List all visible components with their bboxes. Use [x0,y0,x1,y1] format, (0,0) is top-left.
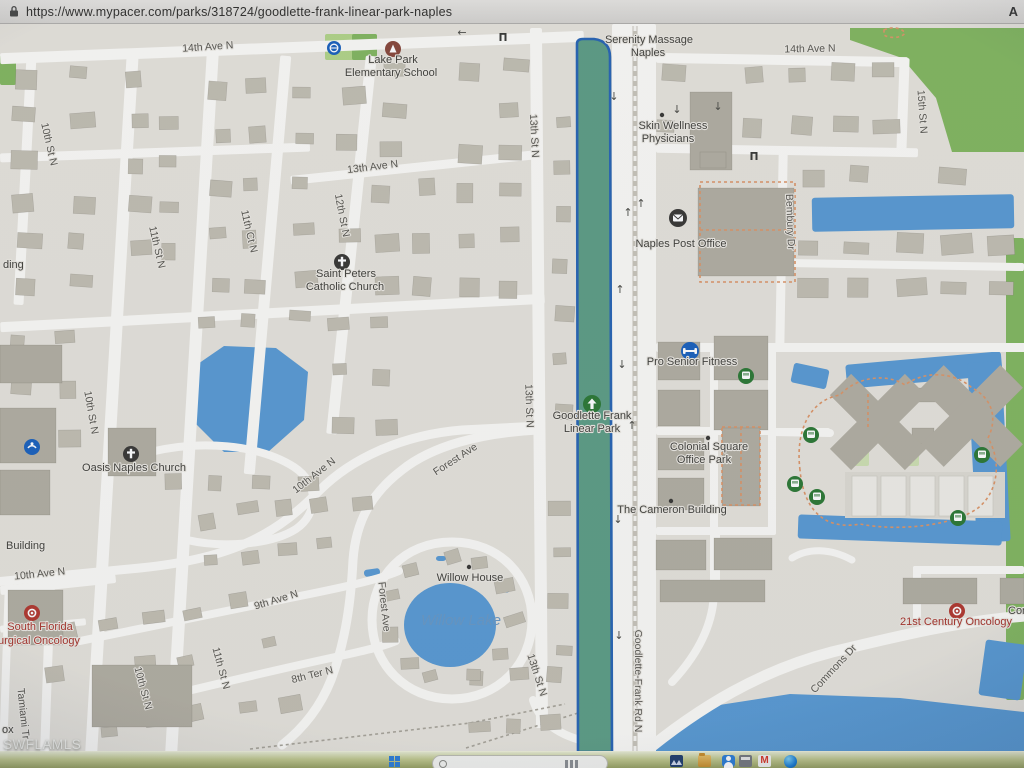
bus-icon[interactable] [803,427,819,443]
edge-browser-icon[interactable] [784,755,797,768]
map-label: Elementary School [345,67,437,79]
map-label: Oasis Naples Church [82,462,186,474]
oneway-arrow: ↓ [617,358,626,371]
map-label: Naples [631,47,666,59]
watermark: SWFLAMLS [3,737,81,752]
contacts-icon[interactable] [722,755,735,767]
bus-icon[interactable] [787,476,803,492]
post-icon[interactable] [669,209,687,227]
taskbar[interactable]: M [0,751,1024,768]
map-label: The Cameron Building [617,504,726,516]
road [913,566,1024,574]
sport-icon[interactable] [327,41,341,55]
blue-icon[interactable] [24,439,40,455]
map-label: Colonial Square [670,441,748,453]
map-label: Catholic Church [306,281,384,293]
map-label: urgical Oncology [0,635,80,647]
map-label: Goodlette-Frank Rd N [632,630,644,733]
oneway-arrow: ↑ [615,283,624,296]
oneway-arrow: ↓ [614,629,623,642]
map-label: Serenity Massage [605,34,693,46]
road [768,348,776,533]
oneway-arrow: ↑ [636,197,645,210]
map-label: Com [1008,605,1024,617]
printer-icon[interactable] [739,755,752,767]
medical-icon[interactable] [24,605,40,621]
map-label: Linear Park [564,423,621,435]
browser-address-bar[interactable]: https://www.mypacer.com/parks/318724/goo… [0,0,1024,24]
app-window-icon[interactable] [670,755,683,767]
oneway-arrow: ↑ [623,206,632,219]
poi-dot [660,113,664,117]
oneway-arrow: ← [457,26,466,39]
map-label: 21st Century Oncology [900,616,1012,628]
map-label: Saint Peters [316,268,376,280]
file-explorer-icon[interactable] [698,755,711,767]
lock-icon [9,5,19,18]
bus-icon[interactable] [974,447,990,463]
poi-dot [467,565,471,569]
water-body [978,639,1024,700]
water-body [436,556,446,561]
water-body [812,194,1015,232]
map-label: Goodlette Frank [553,410,632,422]
search-icon [439,760,447,768]
bus-icon[interactable] [738,368,754,384]
map-label: Pro Senior Fitness [647,356,738,368]
map-label: 13th St N [527,114,541,158]
map-label: Willow Lake [421,612,501,629]
parking-layer [845,472,1005,518]
map-label: 14th Ave N [784,43,835,56]
map[interactable]: ↓↓↓↓←↑↑↑↓↑↓↓14th Ave N14th Ave N13th Ave… [0,0,1024,768]
oneway-arrow: ↓ [672,103,681,116]
map-label: ding [3,259,24,271]
map-label: Naples Post Office [636,238,727,250]
map-label: Physicians [642,133,695,145]
poi-dot [706,436,710,440]
map-label: Lake Park [368,54,418,66]
poi-dot [669,499,673,503]
map-label: South Florida [7,621,73,633]
bus-icon[interactable] [950,510,966,526]
map-label: Willow House [437,572,504,584]
map-label: Building [6,540,45,552]
oneway-arrow: ↓ [609,90,618,103]
corner-letter: A [1009,4,1018,19]
gmail-icon[interactable]: M [758,755,771,767]
church-icon[interactable] [123,446,139,462]
map-label: Skin Wellness [639,120,708,132]
bus-icon[interactable] [809,489,825,505]
map-label: ox [2,724,14,736]
green-area [1006,238,1024,700]
start-button[interactable] [389,756,394,761]
url-text[interactable]: https://www.mypacer.com/parks/318724/goo… [26,5,452,19]
map-label: 13th St N [522,384,536,428]
oneway-arrow: ↓ [713,100,722,113]
map-label: Office Park [677,454,732,466]
map-label: Bembury Dr [783,194,797,251]
search-box[interactable] [432,755,608,768]
